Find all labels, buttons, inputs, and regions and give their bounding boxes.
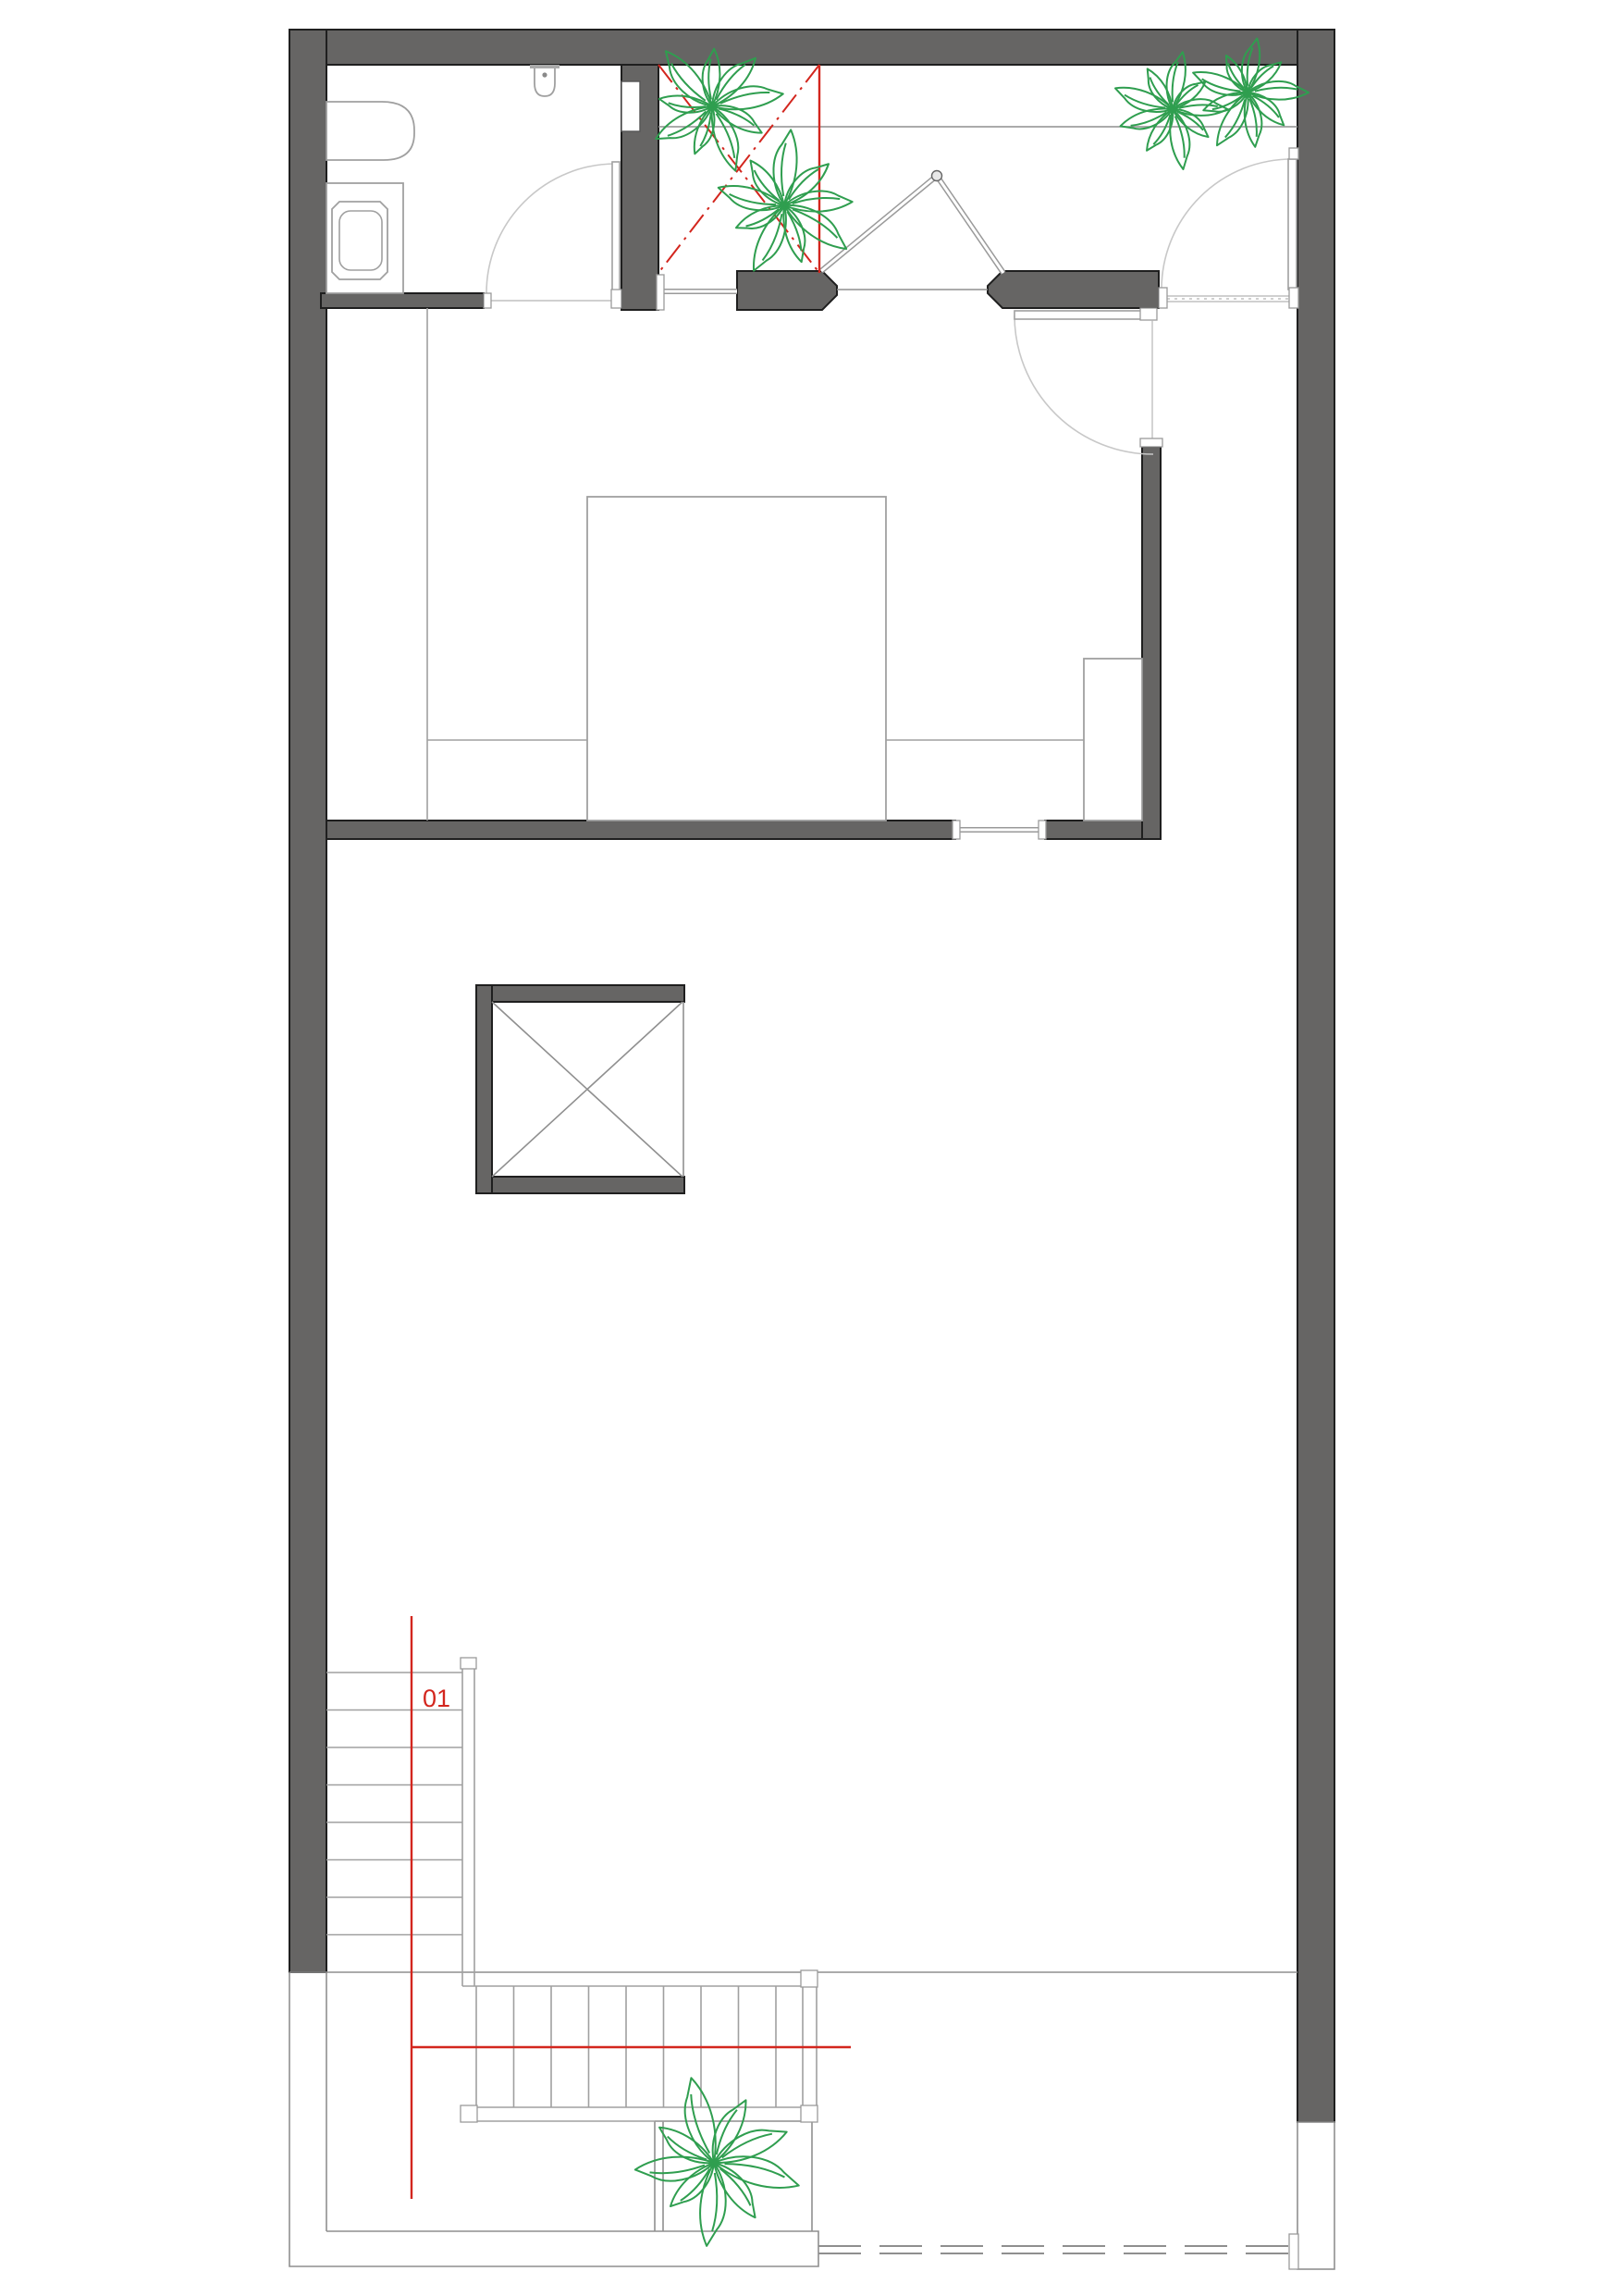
plant-leaf-vein (1179, 105, 1218, 107)
bedroom-right-wall (1142, 447, 1161, 839)
plant-leaf (777, 155, 833, 210)
entry-door-leaf (1288, 159, 1297, 290)
shaft-wall-top (476, 985, 684, 1002)
right-wall (1297, 30, 1334, 2122)
bifold-partition (821, 176, 1003, 273)
bifold-pivot (932, 171, 942, 181)
door-jamb (1039, 821, 1046, 839)
washbasin (332, 202, 387, 279)
plant-leaf (1118, 103, 1175, 135)
door-jamb (953, 821, 960, 839)
bifold-partition-core (821, 176, 1003, 273)
plant-leaf-vein (779, 142, 788, 196)
plant-leaf (697, 2162, 730, 2247)
bathroom-window-opening (621, 81, 640, 131)
plants (618, 17, 1323, 2266)
rail-post (461, 2105, 477, 2122)
plant-leaf (770, 129, 800, 206)
stringer-cap (461, 1658, 476, 1669)
plant-leaf (708, 2118, 791, 2171)
toilet-drain (542, 72, 547, 77)
plant-leaf (1244, 86, 1290, 130)
stairs (326, 1658, 818, 2122)
plant-leaf-vein (1255, 88, 1297, 92)
bedroom-bottom-wall-left (326, 821, 955, 839)
door-jamb (1159, 288, 1167, 308)
plant-leaf (1170, 103, 1213, 142)
shaft-wall-left (476, 985, 492, 1193)
outer-walls (289, 30, 1334, 2269)
section-label: 01 (423, 1685, 450, 1712)
bathroom-bottom-wall (321, 293, 484, 308)
wall-block-c (988, 271, 1159, 308)
rail-post (801, 1970, 818, 1987)
elevator-shaft (476, 985, 684, 1193)
door-jamb (1289, 288, 1298, 308)
door-jamb (657, 275, 664, 310)
door-jamb (1289, 148, 1298, 159)
shaft-wall-bottom (476, 1177, 684, 1193)
bedroom-furniture (427, 308, 1142, 821)
bathroom-door-leaf (612, 162, 620, 291)
floor-plan-drawing: 01 (0, 0, 1623, 2296)
plant-leaf-vein (649, 2166, 705, 2175)
nightstand (1084, 659, 1142, 821)
bathroom-fixtures (326, 67, 559, 293)
entry-door-arc (1162, 159, 1292, 290)
floor-plan: 01 (0, 0, 1623, 2296)
door-jamb (484, 293, 491, 308)
plant-leaf-vein (709, 2173, 719, 2231)
left-wall (289, 30, 326, 1972)
plant-icon (618, 2065, 820, 2267)
right-wall-open-section (1297, 2122, 1334, 2269)
bathroom-door-arc (486, 164, 616, 293)
door-jamb (611, 290, 621, 308)
bed (587, 497, 886, 821)
bedroom-door-leaf (1014, 311, 1153, 319)
gate-jamb (1289, 2234, 1298, 2269)
plant-leaf-vein (1201, 78, 1241, 94)
wall-block-a (737, 271, 837, 310)
rail-post (801, 2105, 818, 2122)
bathtub (326, 102, 414, 160)
door-jamb (1140, 308, 1157, 320)
door-jamb (1140, 438, 1162, 447)
plant-leaf (666, 2158, 722, 2215)
bedroom-door-arc (1014, 315, 1153, 454)
